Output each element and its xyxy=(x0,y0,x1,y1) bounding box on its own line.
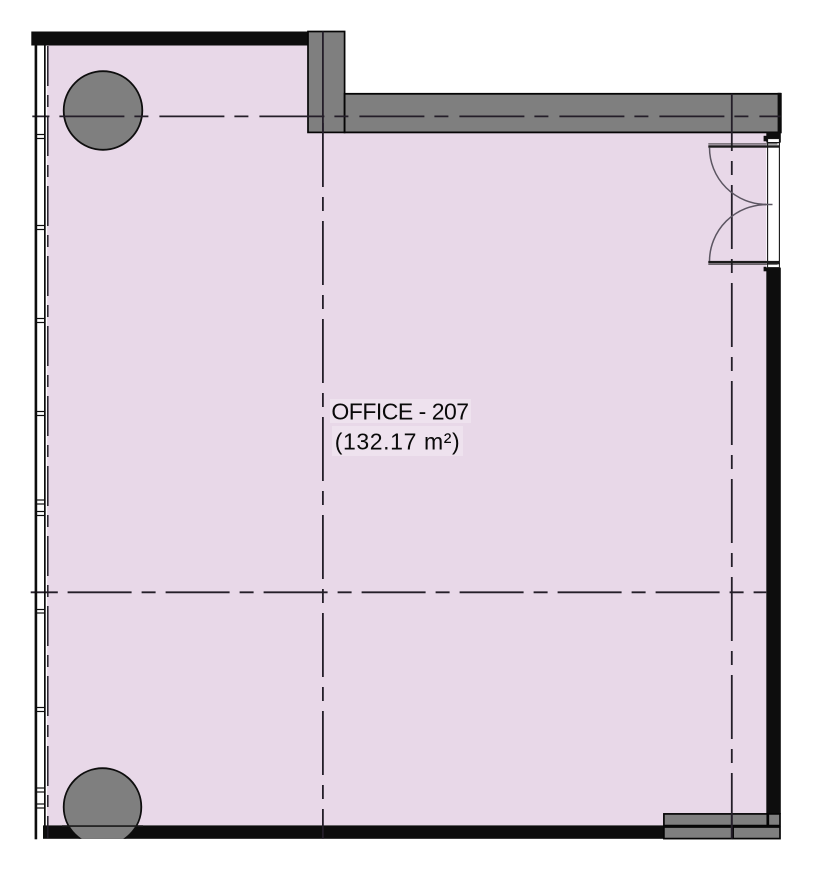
svg-text:(132.17 m²): (132.17 m²) xyxy=(335,428,460,454)
svg-text:OFFICE - 207: OFFICE - 207 xyxy=(331,399,468,425)
